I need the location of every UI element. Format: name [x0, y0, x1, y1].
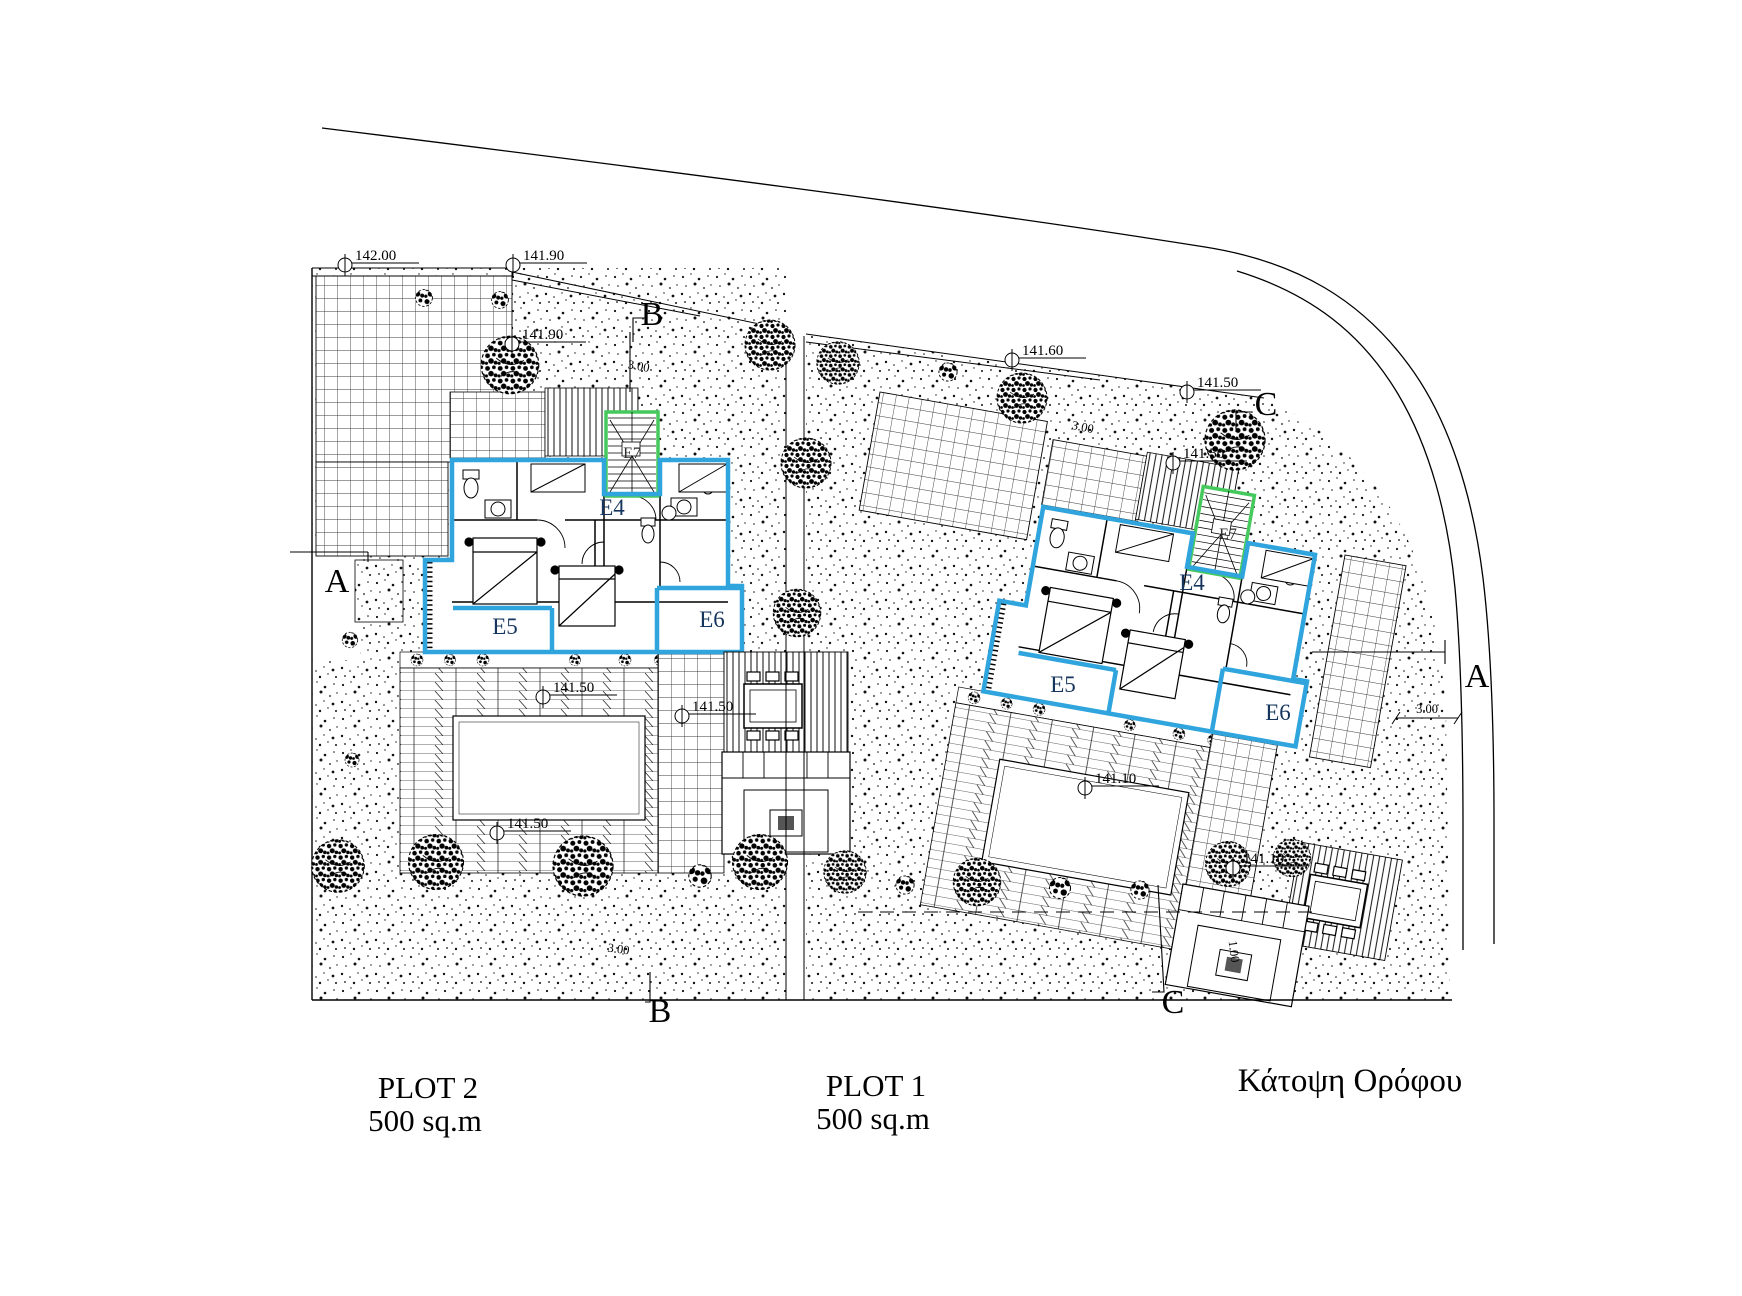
elevation-value: 141.50 [1183, 446, 1224, 462]
building-plot2 [400, 388, 742, 873]
section-letter: B [649, 993, 672, 1030]
tree [817, 342, 860, 385]
bush [689, 865, 711, 887]
elevation-value: 141.50 [1197, 375, 1238, 391]
elevation-value: 141.50 [692, 699, 733, 715]
tree [773, 589, 821, 637]
unit-label-e7-plot2: E7 [623, 445, 641, 462]
unit-label-e4-plot2: E4 [599, 495, 625, 520]
plot-titles: PLOT 2 500 sq.m PLOT 1 500 sq.m Κάτοψη Ο… [368, 1063, 1462, 1138]
plot1-area: 500 sq.m [816, 1101, 930, 1136]
elevation-value: 141.50 [553, 680, 594, 696]
tree [553, 836, 613, 896]
site-plan-drawing: 142.00 141.90 141.90 141.60 141.50 141.5… [0, 0, 1742, 1296]
bush [896, 876, 914, 894]
section-letter: C [1162, 984, 1185, 1021]
bush [939, 363, 957, 381]
tree [997, 373, 1047, 423]
dimension: 1.00 [1226, 940, 1243, 963]
tree [409, 835, 464, 890]
section-letter: A [1465, 658, 1490, 695]
bush [492, 292, 509, 309]
tree [953, 858, 1001, 906]
section-letter: A [325, 563, 350, 600]
tree [312, 840, 365, 893]
section-letter: B [641, 296, 664, 333]
bush [1131, 881, 1149, 899]
site-plan-page: 142.00 141.90 141.90 141.60 141.50 141.5… [0, 0, 1742, 1296]
plot2-area: 500 sq.m [368, 1103, 482, 1138]
svg-text:1.00: 1.00 [1226, 940, 1243, 963]
elevation-value: 141.50 [507, 816, 548, 832]
elevation-value: 141.90 [523, 248, 564, 264]
unit-label-e5-plot1: E5 [1050, 672, 1076, 697]
plot1-name: PLOT 1 [826, 1068, 926, 1103]
plot2-name: PLOT 2 [378, 1070, 478, 1105]
tree [733, 835, 788, 890]
elevation-value: 141.90 [522, 327, 563, 343]
elevation-value: 142.00 [355, 248, 396, 264]
unit-label-e5-plot2: E5 [492, 614, 518, 639]
svg-text:3.00: 3.00 [1416, 702, 1438, 716]
unit-label-e6-plot2: E6 [699, 607, 725, 632]
dining-table [1301, 863, 1370, 940]
unit-label-e4-plot1: E4 [1179, 570, 1205, 595]
bush [345, 753, 359, 767]
tree [824, 851, 867, 894]
bush [1050, 878, 1071, 899]
unit-label-e7-plot1: E7 [1219, 526, 1237, 543]
elevation-value: 141.60 [1022, 343, 1063, 359]
drawing-title: Κάτοψη Ορόφου [1238, 1063, 1463, 1099]
bush [342, 632, 357, 647]
section-letter: C [1255, 386, 1278, 423]
bush [416, 290, 433, 307]
tree [781, 438, 831, 488]
unit-label-e6-plot1: E6 [1265, 700, 1291, 725]
elevation-value: 141.10 [1095, 771, 1136, 787]
tree [745, 320, 795, 370]
elevation-value: 141.10 [1243, 851, 1284, 867]
